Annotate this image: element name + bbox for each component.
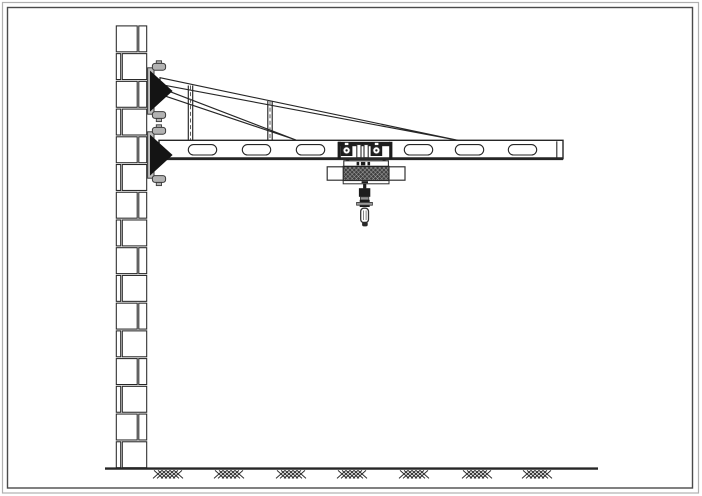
anchor-bolt-bottom — [152, 176, 165, 183]
jib-crane-elevation-drawing — [0, 0, 702, 496]
top-plate-tick-3 — [368, 162, 371, 165]
beam-slot — [508, 145, 536, 155]
hoist-top-plate — [344, 161, 389, 167]
brick — [116, 248, 137, 274]
beam-slot — [242, 145, 270, 155]
end-flange-left — [327, 167, 343, 180]
brick — [116, 109, 120, 135]
trolley-bar-notch-left — [345, 143, 349, 145]
brick — [116, 81, 137, 107]
brick — [122, 165, 146, 191]
earth-hatch-marks — [153, 470, 552, 478]
inner-border — [8, 8, 693, 489]
hoist-rope — [363, 184, 366, 189]
suspension-bar-left — [357, 145, 361, 158]
brick — [116, 26, 137, 52]
brick — [122, 442, 146, 468]
brick — [139, 26, 147, 52]
brick — [116, 192, 137, 218]
tie-rod-truss — [160, 78, 458, 141]
brick — [139, 414, 147, 440]
beam-slot — [188, 145, 216, 155]
brick — [139, 303, 147, 329]
anchor-bolt-top — [152, 63, 165, 70]
hook-block-mid — [360, 197, 368, 200]
earth-hatch — [276, 470, 306, 478]
brick — [139, 359, 147, 385]
brick — [116, 359, 137, 385]
earth-hatch — [337, 470, 367, 478]
end-flange-right — [389, 167, 405, 180]
hook-tip — [362, 222, 368, 227]
truss-strut — [188, 86, 192, 141]
beam-slot — [296, 145, 324, 155]
trolley-plate-right — [389, 142, 392, 159]
hook-eye — [361, 208, 369, 222]
bottom-band-tick — [362, 181, 368, 183]
brick-wall-column — [116, 26, 146, 468]
brick — [116, 137, 137, 163]
earth-hatch — [153, 470, 183, 478]
top-plate-tick-2 — [361, 162, 365, 165]
brick — [116, 414, 137, 440]
brick — [116, 442, 120, 468]
earth-hatch — [522, 470, 552, 478]
sheet-frame — [3, 3, 699, 494]
suspension-bar-right — [364, 145, 368, 158]
trolley-bar-notch-right — [375, 143, 379, 145]
hook-pin — [357, 202, 373, 205]
brick — [116, 54, 120, 80]
brick — [139, 81, 147, 107]
wheel-hub-right — [375, 149, 377, 151]
brick — [139, 192, 147, 218]
brick — [139, 248, 147, 274]
brick — [116, 220, 120, 246]
upper-wall-bracket — [148, 61, 173, 122]
truss-strut — [268, 101, 272, 141]
lower-wall-bracket — [148, 125, 173, 186]
hook-block-upper — [359, 188, 370, 197]
brick — [122, 220, 146, 246]
anchor-bolt-top — [152, 127, 165, 134]
brick — [122, 331, 146, 357]
anchor-bolt-bottom — [152, 112, 165, 119]
earth-hatch — [462, 470, 492, 478]
motor-body — [343, 166, 389, 180]
earth-hatch — [214, 470, 244, 478]
brick — [116, 386, 120, 412]
top-plate-tick-1 — [357, 162, 360, 165]
trolley-plate-left — [338, 142, 341, 159]
earth-hatch — [399, 470, 429, 478]
brick — [116, 165, 120, 191]
brick — [116, 275, 120, 301]
beam-slot — [404, 145, 432, 155]
brick — [122, 275, 146, 301]
brick — [122, 54, 146, 80]
beam-slot — [455, 145, 483, 155]
outer-border — [3, 3, 699, 494]
drawing-sheet — [0, 0, 702, 496]
brick — [116, 303, 137, 329]
brick — [116, 331, 120, 357]
gusset-wedge — [150, 71, 173, 112]
brick — [139, 137, 147, 163]
wheel-hub-left — [345, 149, 347, 151]
brick — [122, 109, 146, 135]
brick — [122, 386, 146, 412]
